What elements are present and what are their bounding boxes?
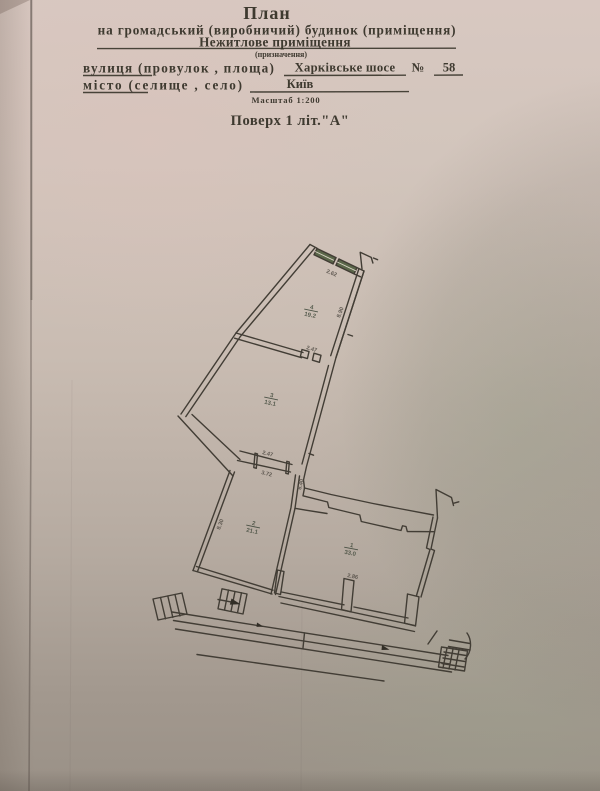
svg-text:58: 58 [443, 61, 456, 75]
svg-text:місто (селище , село): місто (селище , село) [83, 78, 244, 93]
svg-text:(призначення): (призначення) [255, 50, 307, 59]
svg-text:Масштаб 1:200: Масштаб 1:200 [252, 95, 321, 105]
svg-text:План: План [243, 3, 290, 23]
svg-text:Харківське шосе: Харківське шосе [295, 61, 396, 75]
svg-text:Нежитлове приміщення: Нежитлове приміщення [199, 35, 351, 50]
svg-text:Київ: Київ [287, 77, 314, 91]
svg-text:вулиця (провулок , площа): вулиця (провулок , площа) [83, 61, 275, 76]
svg-text:№: № [412, 61, 425, 75]
svg-text:Поверх 1 літ."А": Поверх 1 літ."А" [231, 113, 350, 129]
